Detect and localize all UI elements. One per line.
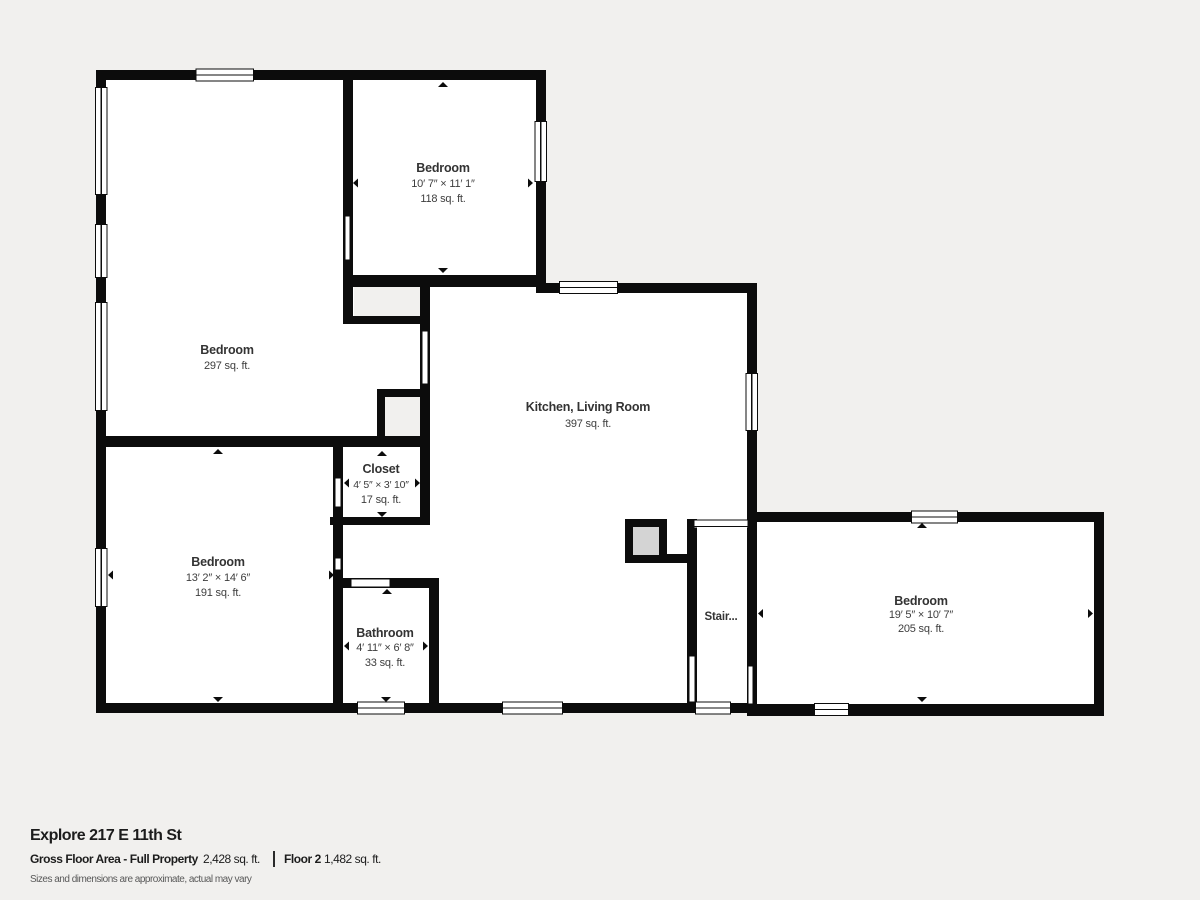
svg-text:33 sq. ft.: 33 sq. ft.: [365, 657, 405, 669]
svg-text:10′ 7″ × 11′ 1″: 10′ 7″ × 11′ 1″: [411, 178, 475, 190]
svg-text:1,482 sq. ft.: 1,482 sq. ft.: [324, 852, 381, 866]
svg-text:2,428 sq. ft.: 2,428 sq. ft.: [203, 852, 260, 866]
svg-text:Closet: Closet: [362, 462, 400, 476]
svg-text:297 sq. ft.: 297 sq. ft.: [204, 360, 250, 372]
svg-text:Sizes and dimensions are appro: Sizes and dimensions are approximate, ac…: [30, 874, 252, 885]
svg-text:191 sq. ft.: 191 sq. ft.: [195, 587, 241, 599]
svg-text:Kitchen, Living Room: Kitchen, Living Room: [526, 400, 651, 414]
svg-text:Explore 217 E 11th St: Explore 217 E 11th St: [30, 827, 183, 844]
svg-text:19′ 5″ × 10′ 7″: 19′ 5″ × 10′ 7″: [889, 609, 954, 621]
svg-text:Bedroom: Bedroom: [416, 161, 470, 175]
svg-text:Floor 2: Floor 2: [284, 852, 322, 866]
svg-text:13′ 2″ × 14′ 6″: 13′ 2″ × 14′ 6″: [186, 572, 251, 584]
svg-text:Stair...: Stair...: [705, 611, 738, 623]
svg-text:397 sq. ft.: 397 sq. ft.: [565, 418, 611, 430]
svg-text:Bedroom: Bedroom: [191, 555, 245, 569]
svg-text:Bathroom: Bathroom: [356, 626, 414, 640]
svg-text:17 sq. ft.: 17 sq. ft.: [361, 494, 401, 506]
svg-text:4′ 5″ × 3′ 10″: 4′ 5″ × 3′ 10″: [353, 479, 409, 491]
svg-text:Gross Floor Area - Full Proper: Gross Floor Area - Full Property: [30, 852, 199, 866]
svg-text:Bedroom: Bedroom: [894, 594, 948, 608]
svg-text:118 sq. ft.: 118 sq. ft.: [420, 193, 465, 205]
svg-text:Bedroom: Bedroom: [200, 343, 254, 357]
svg-text:205 sq. ft.: 205 sq. ft.: [898, 623, 944, 635]
svg-text:4′ 11″ × 6′ 8″: 4′ 11″ × 6′ 8″: [356, 642, 414, 654]
